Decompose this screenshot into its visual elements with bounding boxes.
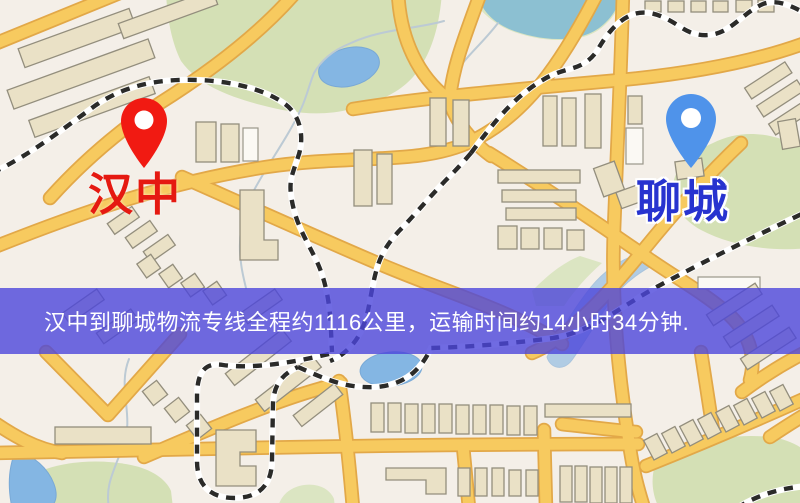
map-canvas[interactable] xyxy=(0,0,800,503)
origin-pin-hole xyxy=(135,111,154,130)
destination-city-label: 聊城 xyxy=(636,179,730,224)
logistics-route-map: 汉中 聊城 汉中到聊城物流专线全程约1116公里，运输时间约14小时34分钟. xyxy=(0,0,800,503)
route-info-text: 汉中到聊城物流专线全程约1116公里，运输时间约14小时34分钟. xyxy=(44,305,689,337)
origin-city-label: 汉中 xyxy=(88,172,182,217)
route-info-banner: 汉中到聊城物流专线全程约1116公里，运输时间约14小时34分钟. xyxy=(0,288,800,354)
destination-pin-hole xyxy=(681,108,701,128)
